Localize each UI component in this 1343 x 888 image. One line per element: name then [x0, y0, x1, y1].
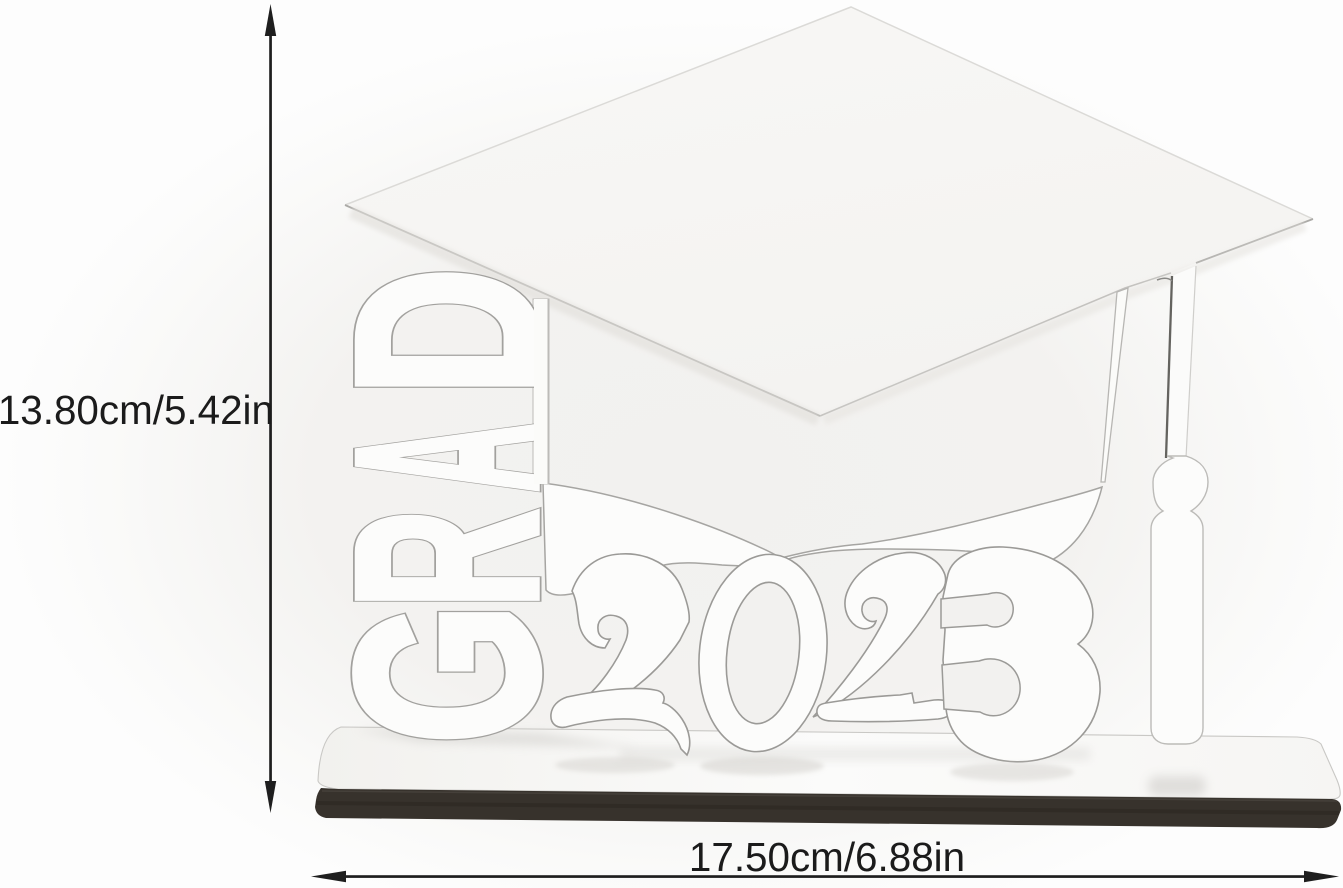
svg-text:13.80cm/5.42in: 13.80cm/5.42in — [0, 387, 274, 433]
svg-text:17.50cm/6.88in: 17.50cm/6.88in — [689, 834, 965, 880]
svg-text:G: G — [303, 604, 591, 744]
svg-text:R: R — [302, 509, 591, 608]
svg-text:A: A — [304, 423, 592, 492]
